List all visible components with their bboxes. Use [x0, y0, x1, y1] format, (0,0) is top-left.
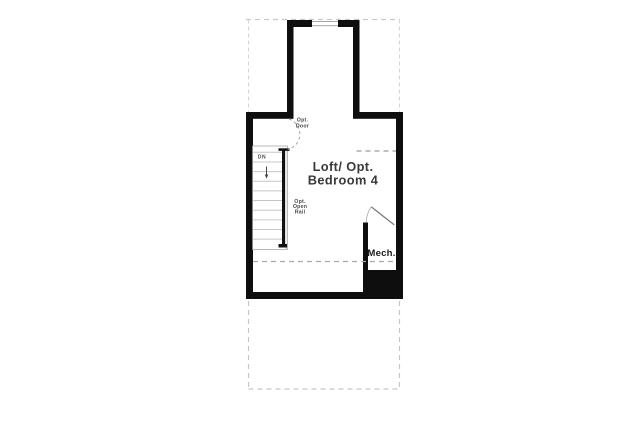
opt-rail-label-line3: Rail	[295, 209, 306, 215]
window-opening	[312, 21, 338, 25]
mech-solid-chase	[363, 270, 403, 299]
stair-treads	[253, 152, 283, 239]
wall-main-left	[246, 112, 253, 299]
mech-door-leaf	[371, 207, 394, 225]
stair-rail-bottom-cap	[279, 244, 288, 248]
stairs	[253, 146, 290, 250]
floor-plan-drawing: Opt. Door DN Loft/ Opt. Bedroom 4 Opt. O…	[0, 0, 639, 426]
mech-door	[366, 207, 394, 225]
stair-rail-line	[282, 149, 285, 246]
mech-room-label: Mech.	[367, 248, 395, 259]
labels: Opt. Door DN Loft/ Opt. Bedroom 4 Opt. O…	[258, 118, 396, 259]
wall-upper-right	[353, 20, 360, 119]
wall-left-shoulder	[246, 112, 294, 119]
stair-direction-arrow	[265, 167, 269, 179]
room-title-line2: Bedroom 4	[308, 173, 379, 188]
opt-door-label-line2: Door	[296, 124, 309, 130]
stairs-dn-label: DN	[258, 155, 266, 161]
wall-right-shoulder	[353, 112, 403, 119]
floor-plan-page: Opt. Door DN Loft/ Opt. Bedroom 4 Opt. O…	[0, 0, 639, 426]
wall-upper-left	[287, 20, 294, 119]
wall-mech-left	[363, 223, 368, 271]
mech-door-swing-arc	[366, 207, 371, 223]
lower-level-dashed-outline	[246, 20, 400, 390]
opt-door-label-line1: Opt.	[297, 118, 309, 124]
